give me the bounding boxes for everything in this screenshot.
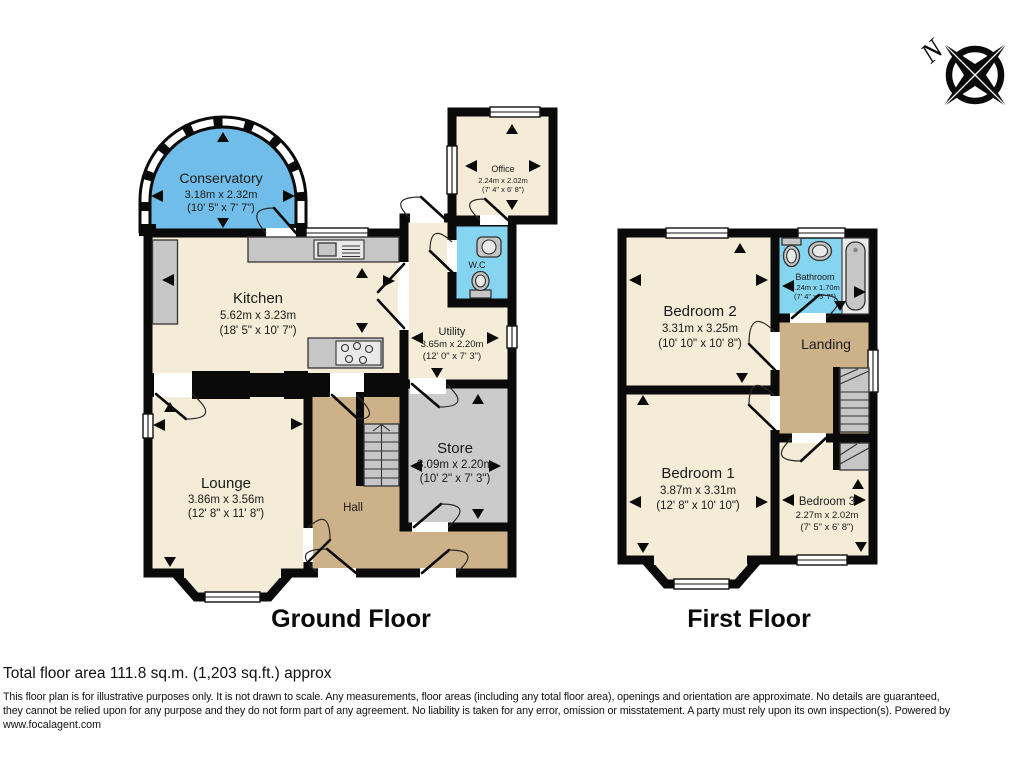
- bedroom3-window: [797, 555, 847, 565]
- conservatory-imperial: (10' 5" x 7' 7"): [187, 202, 255, 214]
- bay-opening: [184, 568, 281, 578]
- conservatory-label: Conservatory: [179, 170, 262, 186]
- bedroom2-imperial: (10' 10" x 10' 8"): [658, 338, 742, 350]
- compass-icon: N: [914, 33, 1007, 107]
- lounge-metric: 3.86m x 3.56m: [188, 494, 264, 506]
- bedroom1-metric: 3.87m x 3.31m: [660, 485, 736, 497]
- bedroom2-label: Bedroom 2: [663, 303, 736, 320]
- website-link: www.focalagent.com: [3, 719, 101, 731]
- bedroom1-bay-window: [674, 579, 729, 589]
- store-metric: 3.09m x 2.20m: [417, 459, 493, 471]
- bedroom2-window: [666, 228, 728, 238]
- bathroom-label: Bathroom: [795, 272, 834, 282]
- bathroom-imperial: (7' 4" x 5' 7"): [794, 292, 836, 301]
- office-top-window: [490, 107, 540, 117]
- total-floor-area: Total floor area 111.8 sq.m. (1,203 sq.f…: [3, 665, 332, 683]
- wc-toilet-icon: [470, 272, 491, 299]
- store-label: Store: [437, 440, 473, 457]
- landing-label: Landing: [801, 336, 851, 352]
- kitchen-label: Kitchen: [233, 290, 283, 307]
- floorplan-drawing: Conservatory 3.18m x 2.32m (10' 5" x 7' …: [0, 0, 1024, 768]
- ground-floor-caption: Ground Floor: [271, 605, 431, 633]
- ground-floor-plan: Conservatory 3.18m x 2.32m (10' 5" x 7' …: [139, 107, 553, 602]
- office-metric: 2.24m x 2.02m: [478, 176, 528, 185]
- chimney-breast: [284, 371, 308, 399]
- wc-sink-icon: [477, 237, 501, 257]
- stairs-icon: [364, 424, 399, 486]
- bedroom1-label: Bedroom 1: [661, 465, 734, 482]
- utility-label: Utility: [439, 326, 466, 338]
- lounge-side-window: [143, 414, 153, 438]
- drain: [853, 248, 858, 253]
- first-floor-caption: First Floor: [687, 605, 811, 633]
- bathroom-toilet-icon: [782, 238, 801, 267]
- bathroom-window: [798, 228, 845, 238]
- stair-wall: [833, 367, 840, 470]
- utility-imperial: (12' 0" x 7' 3"): [423, 351, 481, 362]
- disclaimer-line-1: This floor plan is for illustrative purp…: [3, 691, 940, 703]
- office-side-window: [447, 146, 457, 194]
- stair-wall: [356, 392, 364, 486]
- lounge-bay-window: [205, 592, 260, 602]
- lounge-imperial: (12' 8" x 11' 8"): [188, 508, 264, 520]
- floorplan-canvas: Conservatory 3.18m x 2.32m (10' 5" x 7' …: [0, 0, 1024, 768]
- bedroom1-imperial: (12' 8" x 10' 10"): [656, 500, 740, 512]
- sink-icon: [314, 240, 364, 259]
- office-label: Office: [491, 164, 514, 174]
- bedroom3-metric: 2.27m x 2.02m: [796, 510, 859, 521]
- first-floor-plan: Bedroom 2 3.31m x 3.25m (10' 10" x 10' 8…: [622, 228, 878, 589]
- understairs-closet: [840, 443, 869, 470]
- hall-label: Hall: [343, 502, 363, 514]
- conservatory-metric: 3.18m x 2.32m: [185, 189, 258, 201]
- wc-label: W.C: [469, 260, 486, 270]
- door-opening: [154, 373, 192, 397]
- hob-icon: [336, 341, 381, 365]
- bedroom2-metric: 3.31m x 3.25m: [662, 323, 738, 335]
- office-imperial: (7' 4" x 6' 8"): [482, 185, 524, 194]
- stairs-icon: [840, 368, 869, 432]
- door-opening: [770, 332, 780, 370]
- bay-opening: [654, 555, 747, 565]
- door-opening: [398, 262, 409, 330]
- chimney-breast: [192, 371, 250, 399]
- bathroom-sink-icon: [809, 242, 832, 261]
- utility-window: [507, 326, 517, 348]
- utility-metric: 3.65m x 2.20m: [421, 339, 484, 350]
- kitchen-imperial: (18' 5" x 10' 7"): [219, 325, 296, 337]
- bathtub-icon: [842, 238, 869, 314]
- disclaimer-line-2: they cannot be relied upon for any purpo…: [3, 705, 950, 717]
- bedroom3-imperial: (7' 5" x 6' 8"): [800, 522, 853, 533]
- store-imperial: (10' 2" x 7' 3"): [420, 473, 491, 485]
- lounge-label: Lounge: [201, 475, 251, 492]
- bathroom-metric: 2.24m x 1.70m: [790, 283, 840, 292]
- kitchen-metric: 5.62m x 3.23m: [220, 310, 296, 322]
- compass-north-label: N: [914, 33, 950, 70]
- bedroom3-label: Bedroom 3: [799, 496, 855, 508]
